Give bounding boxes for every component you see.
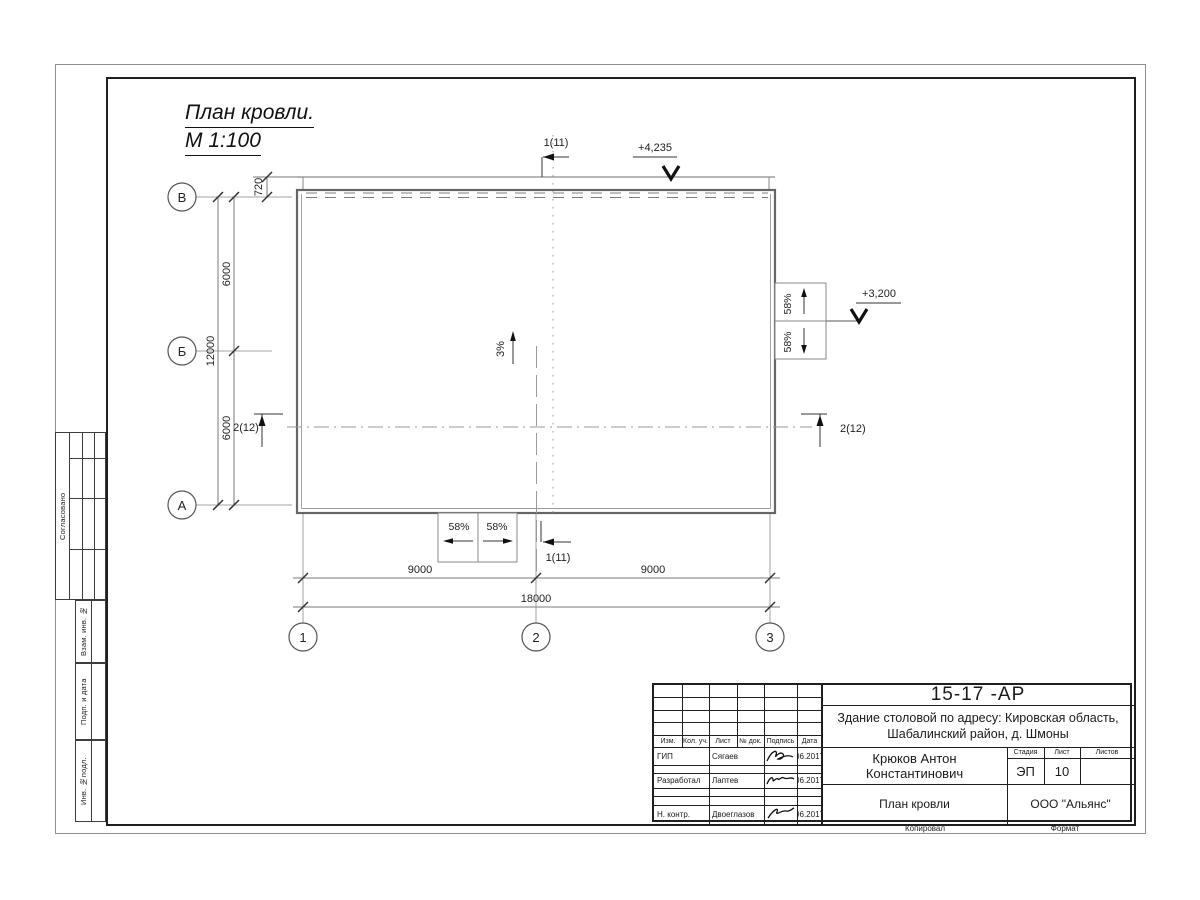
svg-text:+3,200: +3,200 <box>862 288 896 300</box>
canopy-right: 58% 58% <box>775 283 826 359</box>
axis-a: А <box>178 498 187 513</box>
elevation-roof-top: +4,235 <box>633 142 679 179</box>
axis-3: 3 <box>766 630 773 645</box>
tb-sheet-title: План кровли <box>822 784 1007 824</box>
tb-role-razrabotal: Разработал <box>654 773 709 788</box>
axis-bubbles-bottom: 1 2 3 <box>289 623 784 651</box>
svg-text:+4,235: +4,235 <box>638 142 672 154</box>
tb-author: Крюков Антон Константинович <box>822 747 1007 784</box>
tb-date-nkontr: 06.2017 <box>797 805 822 824</box>
section-mark-1-top: 1(11) <box>542 137 569 177</box>
tb-name-gip: Сягаев <box>709 747 764 765</box>
dim-6000-top: 6000 <box>221 262 233 286</box>
section-mark-1-bottom: 1(11) <box>541 521 571 564</box>
tb-name-razrabotal: Лаптев <box>709 773 764 788</box>
svg-text:1(11): 1(11) <box>546 552 571 564</box>
slope-bottom-right: 58% <box>486 521 507 533</box>
tb-role-gip: ГИП <box>654 747 709 765</box>
tb-date-razrabotal: 06.2017 <box>797 773 822 788</box>
axis-v: В <box>178 190 187 205</box>
tb-col-data: Дата <box>797 735 822 747</box>
tb-col-list: Лист <box>709 735 737 747</box>
tb-date-gip: 06.2017 <box>797 747 822 765</box>
tb-stage-value: ЭП <box>1007 758 1044 784</box>
tb-company: ООО "Альянс" <box>1007 784 1134 824</box>
tb-col-dok: № док. <box>737 735 764 747</box>
axis-1: 1 <box>299 630 306 645</box>
tb-stage-col: Стадия <box>1007 747 1044 758</box>
drawing-sheet: План кровли. М 1:100 Согласовано Взам. и… <box>0 0 1200 900</box>
slope-bottom-left: 58% <box>448 521 469 533</box>
slope-main: 3% <box>495 341 507 357</box>
dim-720: 720 <box>253 178 265 196</box>
tb-name-nkontr: Двоеглазов <box>709 805 764 824</box>
elevation-canopy: +3,200 <box>826 288 901 322</box>
slope-right-lower: 58% <box>782 331 794 352</box>
tb-col-izm: Изм. <box>654 735 682 747</box>
format-label: Формат <box>1030 824 1100 833</box>
tb-sheets-value <box>1080 758 1134 784</box>
section-mark-2-right: 2(12) <box>801 414 866 447</box>
canopy-bottom: 58% 58% <box>438 513 517 562</box>
signature-nkontr <box>764 803 797 822</box>
tb-role-nkontr: Н. контр. <box>654 805 709 824</box>
svg-text:2(12): 2(12) <box>840 423 866 435</box>
section-mark-2-left: 2(12) <box>233 414 283 447</box>
signature-razrabotal <box>764 771 797 788</box>
axis-2: 2 <box>532 630 539 645</box>
signature-gip <box>764 747 797 765</box>
dim-6000-bottom: 6000 <box>221 416 233 440</box>
dim-12000: 12000 <box>205 336 217 367</box>
svg-text:1(11): 1(11) <box>544 137 569 149</box>
slope-right-upper: 58% <box>782 293 794 314</box>
tb-col-podpis: Подпись <box>764 735 797 747</box>
title-block: Изм. Кол. уч. Лист № док. Подпись Дата Г… <box>652 683 1132 822</box>
tb-sheets-col: Листов <box>1080 747 1134 758</box>
axis-bubbles-left: В Б А <box>168 183 196 519</box>
tb-project-name: Здание столовой по адресу: Кировская обл… <box>822 705 1134 747</box>
tb-sheet-value: 10 <box>1044 758 1080 784</box>
svg-text:2(12): 2(12) <box>233 422 259 434</box>
copied-label: Копировал <box>880 824 970 833</box>
dim-9000-left: 9000 <box>408 564 432 576</box>
tb-doc-number: 15-17 -АР <box>822 685 1134 705</box>
axis-b: Б <box>178 344 187 359</box>
tb-sheet-col: Лист <box>1044 747 1080 758</box>
dim-18000: 18000 <box>521 593 552 605</box>
tb-col-koluch: Кол. уч. <box>682 735 709 747</box>
dim-9000-right: 9000 <box>641 564 665 576</box>
